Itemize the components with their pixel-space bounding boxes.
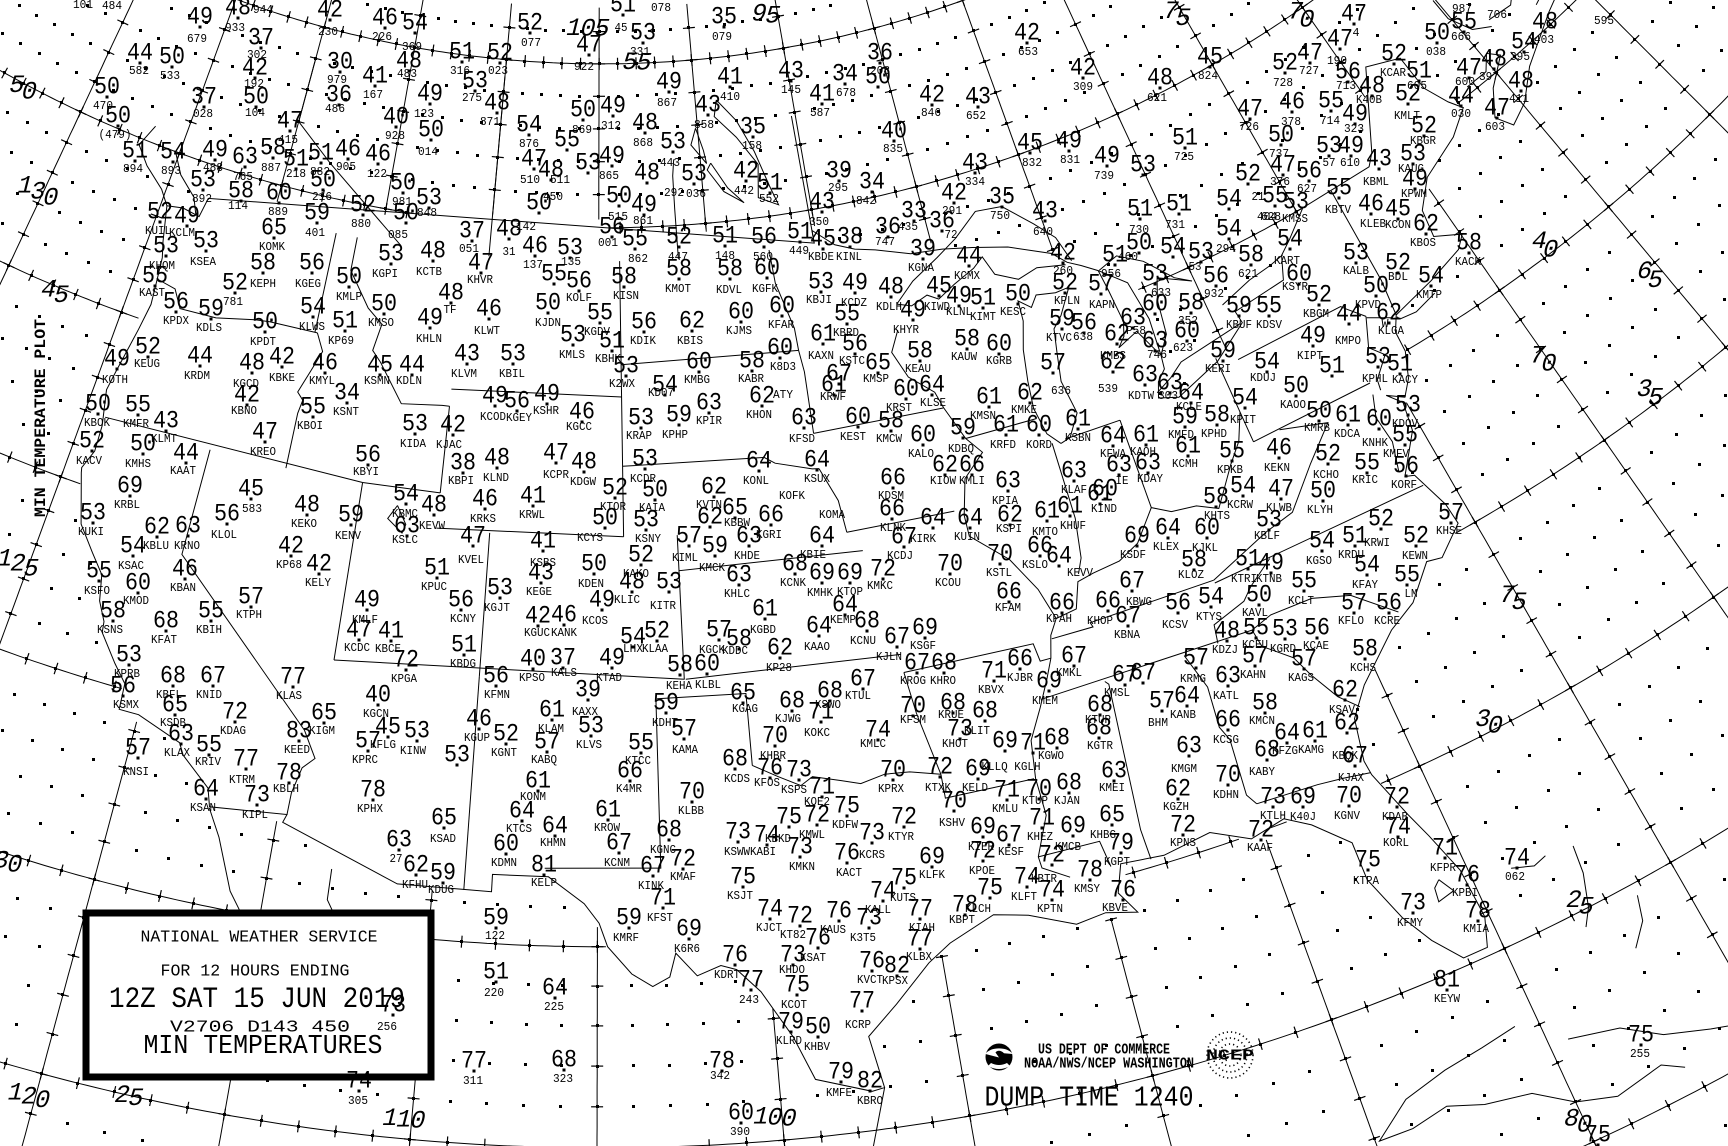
svg-text:KPUC: KPUC <box>421 580 447 594</box>
svg-text:158: 158 <box>742 139 762 153</box>
svg-text:376: 376 <box>1270 175 1290 189</box>
svg-text:KEVV: KEVV <box>1067 566 1094 580</box>
svg-text:KRWL: KRWL <box>519 508 545 522</box>
svg-text:KJCT: KJCT <box>756 921 782 935</box>
svg-text:352: 352 <box>1178 314 1198 328</box>
svg-text:KBML: KBML <box>1363 175 1389 189</box>
svg-text:KGTR: KGTR <box>1087 739 1113 753</box>
svg-text:KPVD: KPVD <box>1355 298 1381 312</box>
svg-text:KOFK: KOFK <box>779 489 806 503</box>
svg-text:KJWG: KJWG <box>775 712 801 726</box>
svg-text:KEKO: KEKO <box>291 517 317 531</box>
svg-text:533: 533 <box>160 69 180 83</box>
svg-text:460: 460 <box>1118 250 1138 264</box>
svg-text:NCEP: NCEP <box>1206 1048 1254 1065</box>
svg-text:KMLF: KMLF <box>352 613 378 627</box>
svg-text:488: 488 <box>203 161 223 175</box>
svg-text:KMTP: KMTP <box>1416 288 1442 302</box>
svg-text:KCDS: KCDS <box>724 772 750 786</box>
svg-text:KPRC: KPRC <box>352 753 378 767</box>
svg-text:27: 27 <box>390 852 403 866</box>
svg-text:390: 390 <box>730 1125 750 1139</box>
svg-text:KMKL: KMKL <box>1056 666 1082 680</box>
svg-text:KELY: KELY <box>305 576 331 590</box>
svg-text:KLOL: KLOL <box>211 528 237 542</box>
svg-text:KBGM: KBGM <box>1303 307 1329 321</box>
svg-text:KAMG: KAMG <box>1298 743 1324 757</box>
svg-text:KLSE: KLSE <box>920 396 946 410</box>
svg-text:KEPH: KEPH <box>250 277 276 291</box>
svg-text:KDTW: KDTW <box>1128 389 1155 403</box>
svg-text:192: 192 <box>244 77 264 91</box>
svg-text:846: 846 <box>921 106 941 120</box>
svg-text:KABY: KABY <box>1249 765 1275 779</box>
svg-text:KPKB: KPKB <box>1217 463 1243 477</box>
svg-text:KVCT: KVCT <box>857 973 883 987</box>
svg-text:P58: P58 <box>1126 324 1146 338</box>
svg-text:KPHL: KPHL <box>1362 372 1388 386</box>
svg-text:KBNO: KBNO <box>231 404 257 418</box>
svg-text:KCYS: KCYS <box>577 531 603 545</box>
svg-text:KCOU: KCOU <box>935 576 961 590</box>
svg-text:KBHK: KBHK <box>595 352 622 366</box>
svg-text:135: 135 <box>561 255 581 269</box>
svg-text:KCDZ: KCDZ <box>841 296 867 310</box>
svg-text:KMSN: KMSN <box>970 409 996 423</box>
svg-text:KLAX: KLAX <box>164 746 190 760</box>
svg-text:KSWO: KSWO <box>815 698 841 712</box>
svg-text:KIRK: KIRK <box>910 532 937 546</box>
svg-text:KLEX: KLEX <box>1153 540 1179 554</box>
svg-text:KSAD: KSAD <box>430 832 456 846</box>
svg-text:KNID: KNID <box>196 688 222 702</box>
svg-text:KFSM: KFSM <box>900 713 926 727</box>
svg-text:746: 746 <box>1147 348 1167 362</box>
svg-text:KBVX: KBVX <box>978 683 1004 697</box>
svg-text:12Z SAT 15 JUN 2019: 12Z SAT 15 JUN 2019 <box>109 983 405 1017</box>
svg-text:167: 167 <box>363 88 383 102</box>
svg-text:MIN TEMPERATURE PLOT: MIN TEMPERATURE PLOT <box>32 319 50 517</box>
svg-text:KEED: KEED <box>284 743 310 757</box>
svg-text:KTVC: KTVC <box>1046 331 1072 345</box>
svg-text:KMGM: KMGM <box>1171 762 1197 776</box>
svg-text:KGCC: KGCC <box>566 420 592 434</box>
svg-text:KLVM: KLVM <box>451 367 477 381</box>
svg-text:KTPH: KTPH <box>236 608 262 622</box>
svg-text:KHDE: KHDE <box>734 549 760 563</box>
svg-text:KSMX: KSMX <box>113 698 139 712</box>
svg-text:KFHU: KFHU <box>402 878 428 892</box>
svg-text:894: 894 <box>123 162 143 176</box>
svg-text:636: 636 <box>1051 384 1071 398</box>
svg-text:W: W <box>1382 317 1390 331</box>
svg-text:KCDJ: KCDJ <box>887 549 913 563</box>
svg-text:KRBL: KRBL <box>114 498 140 512</box>
svg-text:085: 085 <box>388 228 408 242</box>
svg-text:KRWF: KRWF <box>820 390 846 404</box>
svg-text:KESC: KESC <box>1000 305 1026 319</box>
svg-text:KEHA: KEHA <box>666 679 693 693</box>
svg-text:765: 765 <box>233 170 253 184</box>
svg-text:706: 706 <box>1487 8 1507 22</box>
svg-text:KSLO: KSLO <box>1022 558 1048 572</box>
svg-text:KONL: KONL <box>743 474 769 488</box>
svg-text:KCOT: KCOT <box>781 998 807 1012</box>
svg-text:KHMN: KHMN <box>540 836 566 850</box>
svg-text:122: 122 <box>367 167 387 181</box>
svg-text:KTOR: KTOR <box>600 500 626 514</box>
svg-text:KMFD: KMFD <box>1168 428 1194 442</box>
svg-text:KMFR: KMFR <box>123 417 149 431</box>
svg-text:KJMS: KJMS <box>726 324 752 338</box>
svg-text:KBOS: KBOS <box>1410 236 1436 250</box>
svg-text:KFMY: KFMY <box>1397 916 1423 930</box>
svg-text:KPIR: KPIR <box>696 414 722 428</box>
svg-text:848: 848 <box>417 206 437 220</box>
svg-text:KSDF: KSDF <box>1120 548 1146 562</box>
svg-text:515: 515 <box>608 210 628 224</box>
svg-text:KRWI: KRWI <box>1364 536 1390 550</box>
svg-text:KMSY: KMSY <box>1074 882 1100 896</box>
svg-text:KAAO: KAAO <box>804 640 830 654</box>
svg-text:51: 51 <box>610 0 636 20</box>
svg-text:587: 587 <box>810 106 830 120</box>
svg-text:KLAF: KLAF <box>1061 483 1087 497</box>
svg-text:395: 395 <box>1510 50 1530 64</box>
svg-text:KDEN: KDEN <box>578 577 604 591</box>
svg-text:KAOH: KAOH <box>1130 445 1156 459</box>
svg-text:KCRP: KCRP <box>845 1018 871 1032</box>
svg-text:KJAN: KJAN <box>1054 794 1080 808</box>
svg-text:876: 876 <box>519 137 539 151</box>
svg-text:443: 443 <box>660 156 680 170</box>
svg-text:447: 447 <box>668 250 688 264</box>
svg-text:KSLC: KSLC <box>392 533 418 547</box>
svg-text:KPWM: KPWM <box>1401 187 1427 201</box>
svg-text:101: 101 <box>73 0 93 12</box>
svg-text:LM: LM <box>1405 587 1418 601</box>
svg-text:KCDC: KCDC <box>344 641 370 655</box>
svg-text:KGUC: KGUC <box>524 626 550 640</box>
svg-text:KGRI: KGRI <box>756 528 782 542</box>
svg-text:291: 291 <box>942 204 962 218</box>
svg-text:KSGF: KSGF <box>910 639 936 653</box>
svg-text:KORL: KORL <box>1383 836 1409 850</box>
svg-text:905: 905 <box>336 160 356 174</box>
svg-text:KLFT: KLFT <box>1011 890 1037 904</box>
svg-text:KANB: KANB <box>1170 708 1196 722</box>
svg-text:KITR: KITR <box>650 599 676 613</box>
svg-text:KAOO: KAOO <box>1280 398 1306 412</box>
svg-text:KMFV: KMFV <box>1383 447 1410 461</box>
svg-text:DUMP TIME 1240: DUMP TIME 1240 <box>985 1082 1194 1115</box>
svg-text:511: 511 <box>550 173 570 187</box>
svg-text:TF: TF <box>444 303 457 317</box>
svg-text:679: 679 <box>187 32 207 46</box>
svg-text:MIN TEMPERATURES: MIN TEMPERATURES <box>144 1032 383 1062</box>
svg-text:KAUS: KAUS <box>820 923 846 937</box>
svg-text:KCAE: KCAE <box>1303 639 1329 653</box>
svg-text:KEYW: KEYW <box>1434 992 1461 1006</box>
svg-text:869: 869 <box>572 123 592 137</box>
svg-text:603: 603 <box>1485 120 1505 134</box>
svg-text:397: 397 <box>1479 70 1499 84</box>
svg-text:31: 31 <box>503 245 516 259</box>
svg-text:KTYS: KTYS <box>1196 610 1222 624</box>
svg-text:922: 922 <box>574 60 594 74</box>
svg-text:KRNO: KRNO <box>174 539 200 553</box>
svg-text:KFAY: KFAY <box>1352 578 1378 592</box>
svg-text:652: 652 <box>966 109 986 123</box>
svg-text:KBIL: KBIL <box>499 367 525 381</box>
svg-text:401: 401 <box>305 226 325 240</box>
svg-text:KJLN: KJLN <box>876 650 902 664</box>
svg-text:KEST: KEST <box>840 430 866 444</box>
svg-text:932: 932 <box>1204 287 1224 301</box>
svg-text:KTUP: KTUP <box>1022 794 1048 808</box>
svg-text:KRKS: KRKS <box>470 512 496 526</box>
svg-text:KPSO: KPSO <box>519 671 545 685</box>
svg-text:KMRF: KMRF <box>613 931 639 945</box>
svg-text:KSEA: KSEA <box>190 255 217 269</box>
svg-text:KLFK: KLFK <box>919 868 946 882</box>
svg-text:KIAH: KIAH <box>909 921 935 935</box>
svg-text:KP28: KP28 <box>766 661 792 675</box>
svg-text:KBGR: KBGR <box>1410 134 1436 148</box>
svg-text:595: 595 <box>1594 14 1614 28</box>
svg-text:KMOT: KMOT <box>665 282 691 296</box>
svg-text:858: 858 <box>694 118 714 132</box>
svg-text:KSMN: KSMN <box>364 374 390 388</box>
svg-text:KPIT: KPIT <box>1230 413 1256 427</box>
svg-text:728: 728 <box>1273 76 1293 90</box>
svg-text:633: 633 <box>1151 286 1171 300</box>
svg-text:KPNS: KPNS <box>1170 836 1196 850</box>
svg-text:KIOW: KIOW <box>930 474 957 488</box>
svg-text:KREO: KREO <box>250 445 276 459</box>
svg-text:KJBR: KJBR <box>1007 671 1033 685</box>
svg-text:KCHS: KCHS <box>1350 661 1376 675</box>
svg-text:KPIA: KPIA <box>992 494 1019 508</box>
svg-text:KBIH: KBIH <box>196 623 222 637</box>
svg-text:KCRW: KCRW <box>1227 498 1254 512</box>
svg-text:KERI: KERI <box>1205 362 1231 376</box>
svg-text:KOTH: KOTH <box>102 373 128 387</box>
svg-text:600: 600 <box>1455 75 1475 89</box>
svg-text:610: 610 <box>1340 156 1360 170</box>
svg-text:KGAG: KGAG <box>732 702 758 716</box>
svg-text:KAPN: KAPN <box>1089 298 1115 312</box>
svg-text:KSNY: KSNY <box>635 532 661 546</box>
svg-text:737: 737 <box>1269 147 1289 161</box>
svg-text:KGCN: KGCN <box>363 707 389 721</box>
svg-text:KLAA: KLAA <box>642 642 669 656</box>
svg-text:KPOE: KPOE <box>969 864 995 878</box>
svg-text:KMSS: KMSS <box>1282 212 1308 226</box>
svg-text:KSUX: KSUX <box>804 472 830 486</box>
svg-text:KHBR: KHBR <box>760 749 786 763</box>
svg-text:442: 442 <box>734 184 754 198</box>
svg-text:KBOI: KBOI <box>297 419 323 433</box>
svg-text:KPTN: KPTN <box>1037 902 1063 916</box>
svg-text:KAUG: KAUG <box>1398 162 1424 176</box>
svg-text:483: 483 <box>397 67 417 81</box>
svg-text:LHX: LHX <box>623 642 643 656</box>
svg-text:KAGS: KAGS <box>1288 671 1314 685</box>
svg-text:KOE2: KOE2 <box>804 795 830 809</box>
svg-text:KJAC: KJAC <box>436 438 462 452</box>
svg-text:KRST: KRST <box>886 401 912 415</box>
svg-text:KRIV: KRIV <box>195 755 222 769</box>
svg-text:KTRI: KTRI <box>1231 572 1257 586</box>
svg-text:KBIS: KBIS <box>677 334 703 348</box>
svg-text:KDOV: KDOV <box>1392 417 1419 431</box>
svg-text:023: 023 <box>488 64 508 78</box>
svg-text:334: 334 <box>965 175 985 189</box>
svg-text:KBBW: KBBW <box>724 516 751 530</box>
svg-text:981: 981 <box>392 195 412 209</box>
svg-text:077: 077 <box>521 36 541 50</box>
svg-text:KMHS: KMHS <box>125 457 151 471</box>
svg-text:KISN: KISN <box>613 289 639 303</box>
svg-text:KSNT: KSNT <box>333 405 359 419</box>
svg-text:KORF: KORF <box>1391 478 1417 492</box>
svg-text:450: 450 <box>543 190 563 204</box>
svg-text:KBRD: KBRD <box>833 326 859 340</box>
svg-text:KDCA: KDCA <box>1334 427 1361 441</box>
svg-text:KCMH: KCMH <box>1172 457 1198 471</box>
svg-text:628: 628 <box>1261 210 1281 224</box>
svg-text:KDVL: KDVL <box>716 283 742 297</box>
svg-text:BHM: BHM <box>1148 716 1168 730</box>
svg-text:868: 868 <box>633 136 653 150</box>
svg-text:KCSG: KCSG <box>1213 733 1239 747</box>
svg-text:KGBD: KGBD <box>750 623 776 637</box>
svg-text:KHBG: KHBG <box>1090 828 1116 842</box>
svg-text:KLAS: KLAS <box>276 689 302 703</box>
svg-text:KLAM: KLAM <box>538 722 564 736</box>
svg-text:KSNS: KSNS <box>97 623 123 637</box>
svg-text:57: 57 <box>1323 156 1336 170</box>
svg-text:KATL: KATL <box>1213 689 1239 703</box>
svg-text:KCLM: KCLM <box>169 226 195 240</box>
svg-text:824: 824 <box>1198 69 1218 83</box>
svg-text:KCEU: KCEU <box>1242 638 1268 652</box>
svg-text:KBIE: KBIE <box>800 548 826 562</box>
svg-text:KFLO: KFLO <box>1338 614 1364 628</box>
svg-text:987: 987 <box>1452 2 1472 16</box>
svg-text:KGZH: KGZH <box>1163 800 1189 814</box>
svg-text:933: 933 <box>225 21 245 35</box>
svg-text:KCHO: KCHO <box>1313 468 1339 482</box>
svg-text:678: 678 <box>836 86 856 100</box>
svg-text:KLYH: KLYH <box>1307 503 1333 517</box>
svg-text:KLWB: KLWB <box>1266 501 1292 515</box>
svg-text:KMLP: KMLP <box>336 290 362 304</box>
svg-text:KDUJ: KDUJ <box>1250 371 1276 385</box>
svg-text:KDIK: KDIK <box>630 334 657 348</box>
svg-text:KUTS: KUTS <box>890 891 916 905</box>
svg-text:KUIL: KUIL <box>145 224 171 238</box>
svg-text:KPSX: KPSX <box>882 974 908 988</box>
svg-text:KPLN: KPLN <box>1054 294 1080 308</box>
svg-text:730: 730 <box>1129 223 1149 237</box>
svg-text:KMCN: KMCN <box>1249 714 1275 728</box>
svg-text:KLEB: KLEB <box>1360 217 1386 231</box>
svg-text:K40B: K40B <box>1356 93 1382 107</box>
svg-text:145: 145 <box>781 83 801 97</box>
svg-text:028: 028 <box>193 107 213 121</box>
svg-text:KLNK: KLNK <box>880 521 907 535</box>
svg-text:KLIC: KLIC <box>614 593 640 607</box>
svg-text:KFAT: KFAT <box>151 633 177 647</box>
svg-text:KMCB: KMCB <box>1055 840 1081 854</box>
svg-text:449: 449 <box>789 244 809 258</box>
svg-text:BDL: BDL <box>1388 270 1408 284</box>
svg-text:KFAM: KFAM <box>995 601 1021 615</box>
svg-text:KHLN: KHLN <box>416 332 442 346</box>
svg-text:725: 725 <box>1174 150 1194 164</box>
svg-text:KFMN: KFMN <box>484 688 510 702</box>
svg-text:KIDA: KIDA <box>400 437 427 451</box>
svg-text:KMTO: KMTO <box>1032 525 1058 539</box>
svg-text:KCNY: KCNY <box>450 612 476 626</box>
svg-text:KMCW: KMCW <box>876 432 903 446</box>
svg-text:KRUE: KRUE <box>938 708 964 722</box>
svg-text:142: 142 <box>516 220 536 234</box>
svg-text:944: 944 <box>253 3 273 17</box>
svg-text:KCRS: KCRS <box>859 848 885 862</box>
svg-text:KSHV: KSHV <box>939 816 966 830</box>
svg-text:727: 727 <box>1299 64 1319 78</box>
svg-text:714: 714 <box>1320 114 1340 128</box>
svg-text:KEUG: KEUG <box>134 357 160 371</box>
svg-text:862: 862 <box>628 252 648 266</box>
svg-text:KVEL: KVEL <box>458 553 484 567</box>
svg-text:KBWG: KBWG <box>1126 595 1152 609</box>
svg-text:KAST: KAST <box>139 286 165 300</box>
svg-text:KGPI: KGPI <box>372 267 398 281</box>
svg-text:KCRE: KCRE <box>1374 614 1400 628</box>
svg-text:KHON: KHON <box>746 408 772 422</box>
svg-text:062: 062 <box>1505 870 1525 884</box>
svg-text:KACK: KACK <box>1455 255 1482 269</box>
svg-text:KAKO: KAKO <box>623 567 649 581</box>
svg-text:051: 051 <box>459 242 479 256</box>
svg-text:K4MR: K4MR <box>616 782 642 796</box>
svg-text:KESF: KESF <box>998 845 1024 859</box>
svg-text:956: 956 <box>1101 267 1121 281</box>
svg-text:312: 312 <box>601 119 621 133</box>
svg-text:KDSV: KDSV <box>1256 318 1283 332</box>
svg-text:781: 781 <box>223 295 243 309</box>
svg-text:KFOS: KFOS <box>754 776 780 790</box>
svg-text:KPHD: KPHD <box>1201 427 1227 441</box>
svg-text:KGNT: KGNT <box>491 746 517 760</box>
svg-text:KSWW: KSWW <box>724 845 751 859</box>
svg-text:KSPI: KSPI <box>996 522 1022 536</box>
svg-text:KIPT: KIPT <box>1297 349 1323 363</box>
svg-text:KPDX: KPDX <box>163 314 189 328</box>
svg-text:739: 739 <box>1094 169 1114 183</box>
svg-text:KMBG: KMBG <box>684 373 710 387</box>
svg-text:623: 623 <box>1173 341 1193 355</box>
svg-text:KRDM: KRDM <box>184 369 210 383</box>
svg-text:303: 303 <box>1158 389 1178 403</box>
svg-text:747: 747 <box>875 235 895 249</box>
svg-text:621: 621 <box>1238 267 1258 281</box>
svg-text:KGCD: KGCD <box>233 377 259 391</box>
